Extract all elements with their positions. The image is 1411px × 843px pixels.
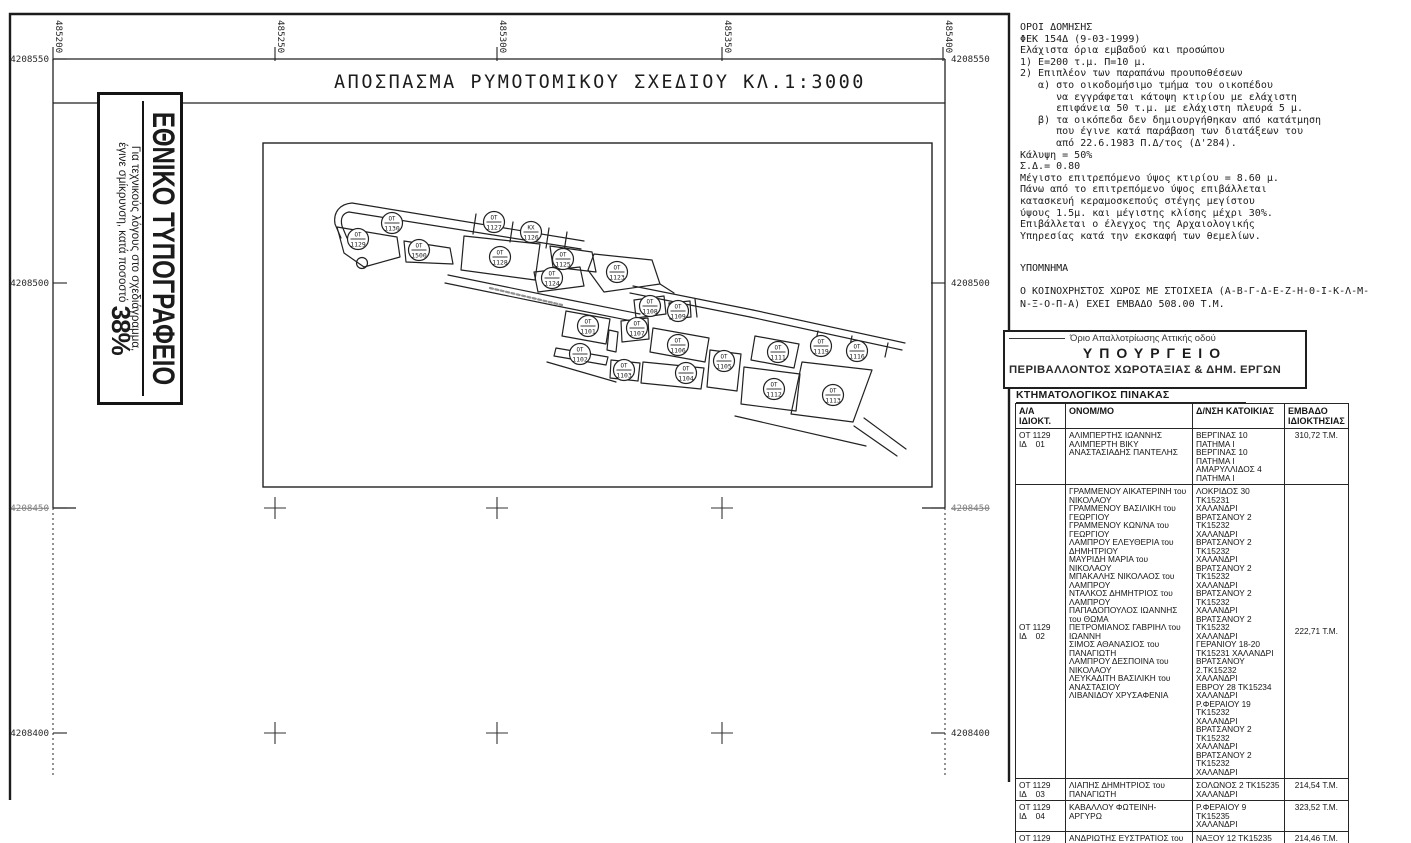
svg-text:ΟΤ: ΟΤ (721, 355, 728, 361)
block-label: ΟΤ1128 (490, 247, 511, 268)
plan-geometry (335, 203, 906, 456)
svg-text:ΟΤ: ΟΤ (621, 364, 628, 370)
table-header-cell: Α/Α ΙΔΙΟΚΤ. (1016, 404, 1066, 429)
sheet-title: ΑΠΟΣΠΑΣΜΑ ΡΥΜΟΤΟΜΙΚΟΥ ΣΧΕΔΙΟΥ ΚΛ.1:3000 (334, 72, 866, 93)
reduction-percent: 38% (106, 306, 136, 355)
cell-block: ΟΤ 1129 ΙΔ 02 (1016, 485, 1066, 779)
cell-address: ΣΟΛΩΝΟΣ 2 ΤΚ15235 ΧΑΛΑΝΔΡΙ (1193, 779, 1285, 801)
svg-text:1127: 1127 (486, 224, 502, 232)
cell-names: ΚΑΒΑΛΛΟΥ ΦΩΤΕΙΝΗ-ΑΡΓΥΡΩ (1066, 801, 1193, 832)
table-row: ΟΤ 1129 ΙΔ 04ΚΑΒΑΛΛΟΥ ΦΩΤΕΙΝΗ-ΑΡΓΥΡΩΡ.ΦΕ… (1016, 801, 1349, 832)
block-label: ΟΤ1101 (578, 316, 599, 337)
cell-names: ΑΝΔΡΙΩΤΗΣ ΕΥΣΤΡΑΤΙΟΣ του ΑΡΙΣΤΟΤΕΛΗ (1066, 831, 1193, 843)
cell-area: 310,72 Τ.Μ. (1285, 429, 1349, 485)
svg-text:ΟΤ: ΟΤ (775, 346, 782, 352)
cell-area: 214,46 Τ.Μ. (1285, 831, 1349, 843)
svg-text:1105: 1105 (716, 363, 732, 371)
grid-cross (264, 722, 286, 744)
svg-text:1104: 1104 (678, 375, 694, 383)
cadastral-table: Α/Α ΙΔΙΟΚΤ.ΟΝΟΜ/ΜΟΔ/ΝΣΗ ΚΑΤΟΙΚΙΑΣΕΜΒΑΔΟ … (1015, 403, 1349, 843)
grid-cross (264, 497, 286, 519)
table-row: ΟΤ 1129 ΙΔ 02ΓΡΑΜΜΕΝΟΥ ΑΙΚΑΤΕΡΙΝΗ του ΝΙ… (1016, 485, 1349, 779)
cell-address: Ρ.ΦΕΡΑΙΟΥ 9 ΤΚ15235 ΧΑΛΑΝΔΡΙ (1193, 801, 1285, 832)
cell-area: 222,71 Τ.Μ. (1285, 485, 1349, 779)
map-frame (53, 59, 945, 778)
table-row: ΟΤ 1129 ΙΔ 05ΑΝΔΡΙΩΤΗΣ ΕΥΣΤΡΑΤΙΟΣ του ΑΡ… (1016, 831, 1349, 843)
block-label: ΟΤ1113 (823, 385, 844, 406)
block-label: ΟΤ1500 (409, 240, 430, 261)
northing-label-left: 4208400 (10, 728, 49, 739)
easting-label: 485250 (275, 20, 286, 53)
svg-text:ΟΤ: ΟΤ (634, 322, 641, 328)
block-label: ΟΤ1108 (640, 296, 661, 317)
easting-label: 485350 (722, 20, 733, 53)
printing-office-stamp: ΕΘΝΙΚΟ ΤΥΠΟΓΡΑΦΕΙΟ Για τεχνικούς λόγους … (95, 90, 185, 407)
table-header-cell: ΟΝΟΜ/ΜΟ (1066, 404, 1193, 429)
northing-label-right: 4208550 (951, 54, 990, 65)
northing-label-right: 4208500 (951, 278, 990, 289)
svg-text:ΟΤ: ΟΤ (830, 389, 837, 395)
svg-text:1123: 1123 (609, 274, 625, 282)
block-label: ΟΤ1112 (764, 379, 785, 400)
block-label: ΟΤ1102 (570, 344, 591, 365)
block-label: ΟΤ1119 (811, 336, 832, 357)
svg-text:ΟΤ: ΟΤ (818, 340, 825, 346)
svg-text:ΟΤ: ΟΤ (549, 272, 556, 278)
svg-text:1124: 1124 (544, 280, 560, 288)
svg-text:ΟΤ: ΟΤ (560, 253, 567, 259)
legend-title: ΥΠΟΜΝΗΜΑ (1020, 263, 1068, 275)
svg-text:1107: 1107 (629, 330, 645, 338)
northing-label-right: 4208450 (951, 503, 990, 514)
svg-text:1129: 1129 (350, 241, 366, 249)
svg-text:1116: 1116 (849, 353, 865, 361)
block-label: ΟΤ1125 (553, 249, 574, 270)
building-terms-text: ΟΡΟΙ ΔΟΜΗΣΗΣ ΦΕΚ 154Δ (9-03-1999) Ελάχισ… (1020, 22, 1321, 242)
table-caption: ΚΤΗΜΑΤΟΛΟΓΙΚΟΣ ΠΙΝΑΚΑΣ (1016, 389, 1246, 403)
svg-text:ΟΤ: ΟΤ (675, 339, 682, 345)
northing-label-right: 4208400 (951, 728, 990, 739)
cell-address: ΒΕΡΓΙΝΑΣ 10 ΠΑΤΗΜΑ Ι ΒΕΡΓΙΝΑΣ 10 ΠΑΤΗΜΑ … (1193, 429, 1285, 485)
svg-text:ΟΤ: ΟΤ (497, 251, 504, 257)
svg-text:ΚΧ: ΚΧ (528, 226, 535, 232)
svg-text:ΟΤ: ΟΤ (647, 300, 654, 306)
printing-office-title: ΕΘΝΙΚΟ ΤΥΠΟΓΡΑΦΕΙΟ (144, 112, 180, 385)
block-label: ΟΤ1129 (348, 229, 369, 250)
svg-text:1108: 1108 (642, 308, 658, 316)
svg-text:1102: 1102 (572, 356, 588, 364)
ministry-stamp: Όριο Απαλλοτρίωσης Αττικής οδού ΥΠΟΥΡΓΕΙ… (1003, 330, 1307, 389)
cell-names: ΑΛΙΜΠΕΡΤΗΣ ΙΩΑΝΝΗΣ ΑΛΙΜΠΕΡΤΗ ΒΙΚΥ ΑΝΑΣΤΑ… (1066, 429, 1193, 485)
scanned-cadastral-document: ΑΠΟΣΠΑΣΜΑ ΡΥΜΟΤΟΜΙΚΟΥ ΣΧΕΔΙΟΥ ΚΛ.1:3000 (0, 0, 1411, 843)
svg-text:ΟΤ: ΟΤ (355, 233, 362, 239)
svg-text:ΟΤ: ΟΤ (614, 266, 621, 272)
table-row: ΟΤ 1129 ΙΔ 01ΑΛΙΜΠΕΡΤΗΣ ΙΩΑΝΝΗΣ ΑΛΙΜΠΕΡΤ… (1016, 429, 1349, 485)
svg-text:1500: 1500 (411, 252, 427, 260)
block-labels: ΟΤ1129ΟΤ1130ΟΤ1500ΟΤ1127ΚΧ1126ΟΤ1128ΟΤ11… (348, 212, 868, 406)
svg-text:1103: 1103 (616, 372, 632, 380)
svg-text:ΟΤ: ΟΤ (771, 383, 778, 389)
svg-text:ΟΤ: ΟΤ (389, 217, 396, 223)
cell-names: ΓΡΑΜΜΕΝΟΥ ΑΙΚΑΤΕΡΙΝΗ του ΝΙΚΟΛΑΟΥ ΓΡΑΜΜΕ… (1066, 485, 1193, 779)
grid-cross (711, 722, 733, 744)
easting-label: 485400 (943, 20, 954, 53)
cell-area: 214,54 Τ.Μ. (1285, 779, 1349, 801)
northing-label-left: 4208450 (10, 503, 49, 514)
block-label: ΟΤ1103 (614, 360, 635, 381)
grid-cross (711, 497, 733, 519)
svg-text:1113: 1113 (825, 397, 841, 405)
grid-cross (486, 722, 508, 744)
ministry-line2: ΠΕΡΙΒΑΛΛΟΝΤΟΣ ΧΩΡΟΤΑΞΙΑΣ & ΔΗΜ. ΕΡΓΩΝ (1009, 364, 1301, 376)
block-label: ΟΤ1104 (676, 363, 697, 384)
survey-point-circle (357, 258, 368, 269)
svg-text:1112: 1112 (766, 391, 782, 399)
svg-text:1106: 1106 (670, 347, 686, 355)
block-label: ΟΤ1111 (768, 342, 789, 363)
svg-text:ΟΤ: ΟΤ (585, 320, 592, 326)
northing-label-left: 4208500 (10, 278, 49, 289)
block-label: ΟΤ1107 (627, 318, 648, 339)
expropriation-boundary-legend: Όριο Απαλλοτρίωσης Αττικής οδού (1009, 333, 1301, 344)
svg-text:ΟΤ: ΟΤ (675, 305, 682, 311)
block-label: ΟΤ1130 (382, 213, 403, 234)
boundary-line-symbol (1009, 338, 1065, 339)
svg-text:1101: 1101 (580, 328, 596, 336)
block-label: ΟΤ1116 (847, 341, 868, 362)
street-name-marks (490, 288, 562, 305)
ministry-line1: ΥΠΟΥΡΓΕΙΟ (1009, 345, 1301, 361)
block-label: ΟΤ1124 (542, 268, 563, 289)
legend-text: Ο ΚΟΙΝΟΧΡΗΣΤΟΣ ΧΩΡΟΣ ΜΕ ΣΤΟΙΧΕΙΑ (Α-Β-Γ-… (1020, 286, 1369, 311)
table-header-row: Α/Α ΙΔΙΟΚΤ.ΟΝΟΜ/ΜΟΔ/ΝΣΗ ΚΑΤΟΙΚΙΑΣΕΜΒΑΔΟ … (1016, 404, 1349, 429)
block-label: ΟΤ1127 (484, 212, 505, 233)
svg-text:1125: 1125 (555, 261, 571, 269)
svg-text:1128: 1128 (492, 259, 508, 267)
cell-names: ΛΙΑΠΗΣ ΔΗΜΗΤΡΙΟΣ του ΠΑΝΑΓΙΩΤΗ (1066, 779, 1193, 801)
block-label: ΟΤ1105 (714, 351, 735, 372)
block-label: ΚΧ1126 (521, 222, 542, 243)
svg-text:1109: 1109 (670, 313, 686, 321)
table-row: ΟΤ 1129 ΙΔ 03ΛΙΑΠΗΣ ΔΗΜΗΤΡΙΟΣ του ΠΑΝΑΓΙ… (1016, 779, 1349, 801)
svg-text:1119: 1119 (813, 348, 829, 356)
cell-block: ΟΤ 1129 ΙΔ 01 (1016, 429, 1066, 485)
easting-label: 485300 (497, 20, 508, 53)
svg-text:ΟΤ: ΟΤ (683, 367, 690, 373)
northing-label-left: 4208550 (10, 54, 49, 65)
table-header-cell: Δ/ΝΣΗ ΚΑΤΟΙΚΙΑΣ (1193, 404, 1285, 429)
block-label: ΟΤ1106 (668, 335, 689, 356)
block-label: ΟΤ1123 (607, 262, 628, 283)
cell-address: ΛΟΚΡΙΔΟΣ 30 ΤΚ15231 ΧΑΛΑΝΔΡΙ ΒΡΑΤΣΑΝΟΥ 2… (1193, 485, 1285, 779)
svg-text:1111: 1111 (770, 354, 786, 362)
svg-text:1130: 1130 (384, 225, 400, 233)
svg-text:ΟΤ: ΟΤ (577, 348, 584, 354)
cell-address: ΝΑΞΟΥ 12 ΤΚ15235 ΧΑΛΑΝΔΡΙ (1193, 831, 1285, 843)
svg-text:ΟΤ: ΟΤ (416, 244, 423, 250)
boundary-label: Όριο Απαλλοτρίωσης Αττικής οδού (1070, 333, 1216, 344)
printing-office-note: Για τεχνικούς λόγους στο σχεδιάγραμμα, έ… (114, 142, 141, 354)
svg-text:ΟΤ: ΟΤ (491, 216, 498, 222)
block-label: ΟΤ1109 (668, 301, 689, 322)
cell-block: ΟΤ 1129 ΙΔ 04 (1016, 801, 1066, 832)
svg-text:1126: 1126 (523, 234, 539, 242)
svg-text:ΟΤ: ΟΤ (854, 345, 861, 351)
table-header-cell: ΕΜΒΑΔΟ ΙΔΙΟΚΤΗΣΙΑΣ (1285, 404, 1349, 429)
cell-block: ΟΤ 1129 ΙΔ 03 (1016, 779, 1066, 801)
cell-block: ΟΤ 1129 ΙΔ 05 (1016, 831, 1066, 843)
cell-area: 323,52 Τ.Μ. (1285, 801, 1349, 832)
grid-cross (486, 497, 508, 519)
easting-label: 485200 (53, 20, 64, 53)
